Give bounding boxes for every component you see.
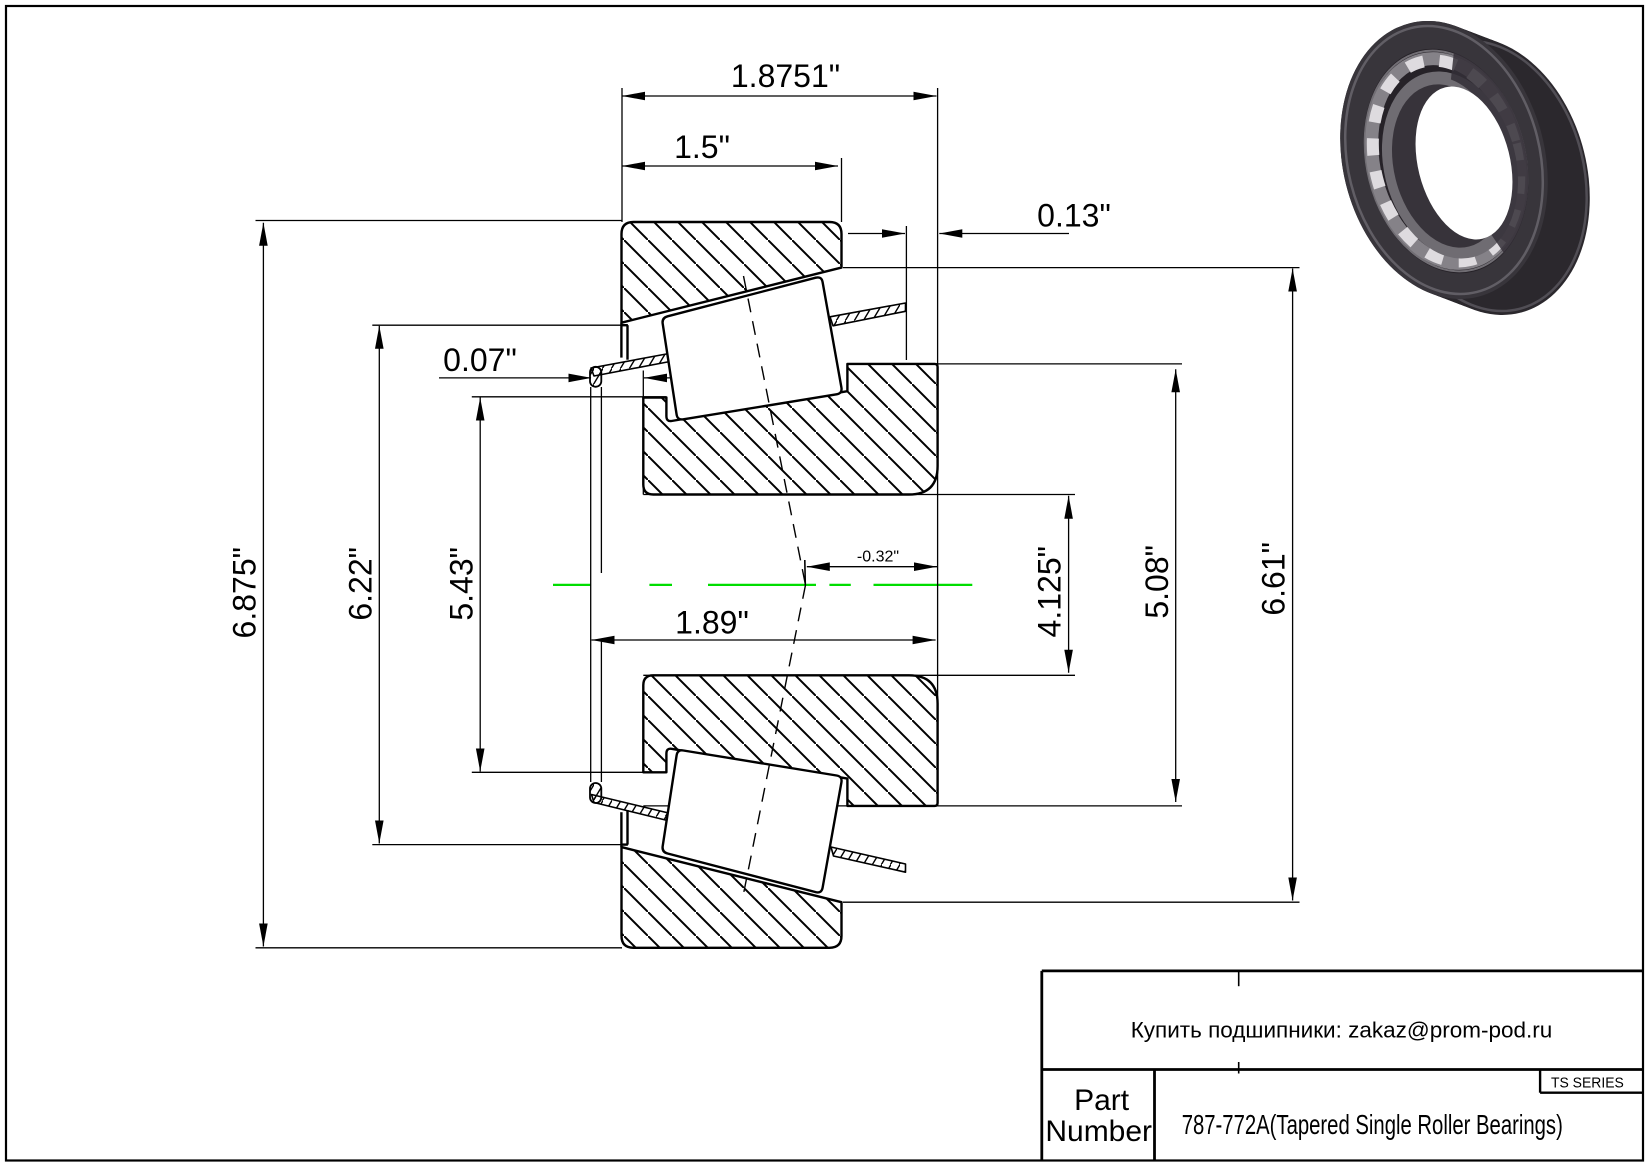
svg-text:Number: Number (1045, 1115, 1152, 1148)
svg-text:Купить подшипники: zakaz@prom-: Купить подшипники: zakaz@prom-pod.ru (1131, 1018, 1553, 1043)
svg-text:0.07": 0.07" (443, 342, 517, 378)
svg-text:1.8751": 1.8751" (731, 58, 840, 94)
svg-text:5.43": 5.43" (443, 547, 479, 621)
svg-text:787-772A(Tapered Single Roller: 787-772A(Tapered Single Roller Bearings) (1182, 1110, 1563, 1141)
svg-text:6.61": 6.61" (1256, 542, 1292, 616)
svg-text:6.875": 6.875" (227, 547, 263, 638)
svg-text:0.13": 0.13" (1037, 198, 1111, 234)
svg-text:6.22": 6.22" (342, 547, 378, 621)
svg-text:4.125": 4.125" (1032, 546, 1068, 637)
svg-text:TS SERIES: TS SERIES (1551, 1075, 1624, 1092)
svg-text:5.08": 5.08" (1139, 545, 1175, 619)
svg-text:Part: Part (1074, 1084, 1130, 1117)
svg-text:-0.32": -0.32" (857, 548, 899, 565)
svg-text:1.89": 1.89" (675, 604, 749, 640)
svg-text:1.5": 1.5" (674, 129, 730, 165)
